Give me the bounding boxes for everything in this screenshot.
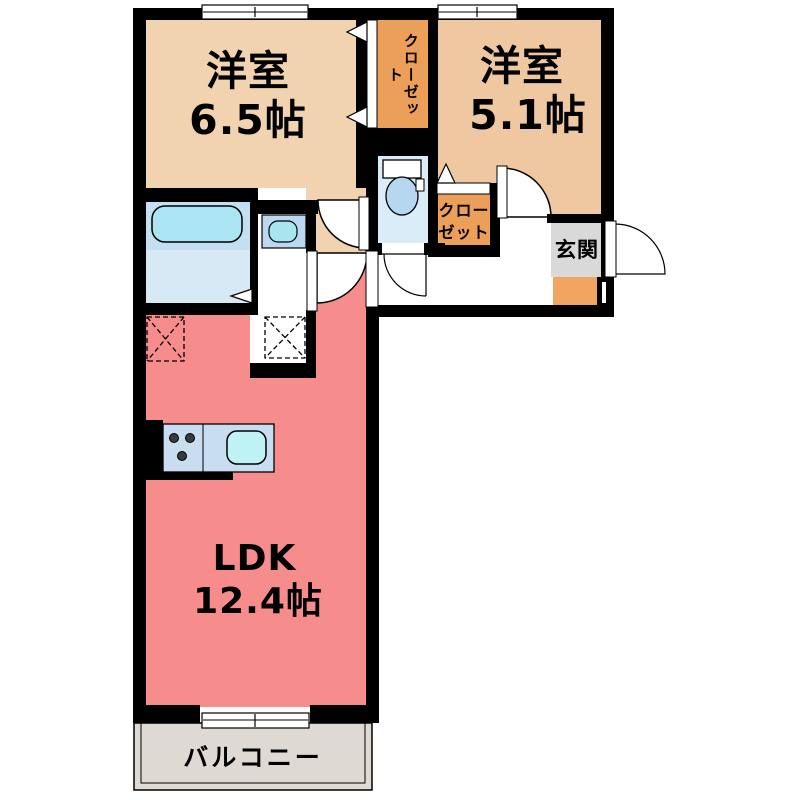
- washroom-door-leaf: [307, 251, 317, 311]
- window-room-2: [438, 5, 517, 19]
- floor-plan: 洋室 6.5帖 洋室 5.1帖 クローゼット クローゼット 玄関 LDK 12.…: [0, 0, 800, 800]
- ldk-name-label: LDK: [152, 540, 357, 578]
- kitchen-counter: [163, 424, 274, 472]
- room-2-area-label: 5.1帖: [424, 94, 632, 137]
- western-room-2-door-leaf: [497, 166, 507, 218]
- closet-mid-folding-door: [437, 183, 490, 194]
- entrance-door-swing: [615, 224, 665, 274]
- window-balcony: [202, 713, 309, 728]
- closet-top-folding-door: [367, 20, 377, 128]
- closet-top-label: クローゼット: [385, 25, 419, 126]
- wall-notch: [602, 282, 606, 303]
- window-room-1: [202, 5, 308, 19]
- entrance-label: 玄関: [548, 239, 606, 261]
- western-room-1-door-leaf: [359, 197, 369, 250]
- balcony-label: バルコニー: [150, 745, 356, 771]
- shoe-cabinet: [553, 277, 597, 305]
- ldk-area-label: 12.4帖: [148, 583, 368, 621]
- toilet-door-swing: [382, 254, 426, 296]
- closet-mid-label: クローゼット: [437, 200, 491, 243]
- hall-wall-cap: [366, 251, 378, 307]
- ldk-floor-left: [146, 315, 250, 707]
- entrance-door-leaf: [605, 221, 616, 277]
- room-1-name-label: 洋室: [148, 50, 348, 93]
- kitchen-sink-icon: [227, 431, 266, 464]
- washbasin-icon: [269, 221, 297, 242]
- room-2-name-label: 洋室: [422, 45, 622, 88]
- bathtub-icon: [152, 206, 242, 242]
- room-1-area-label: 6.5帖: [140, 99, 356, 142]
